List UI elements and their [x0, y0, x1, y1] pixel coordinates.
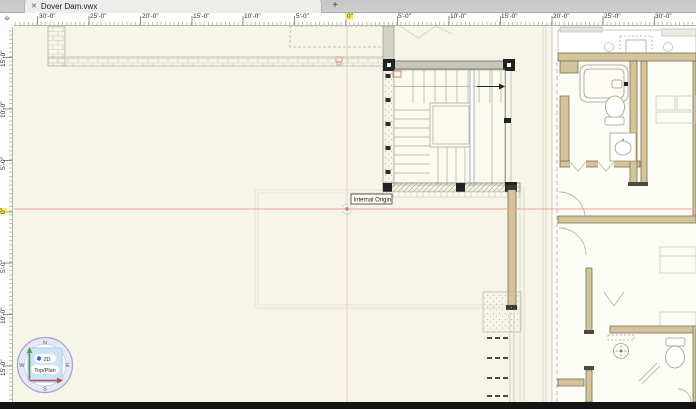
horizontal-ruler: 30'-0"25'-0"20'-0"15'-0"10'-0"5'-0"0"5'-… [14, 13, 696, 26]
ruler-label: 5'-0" [396, 13, 411, 20]
ruler-label: 15'-0" [0, 359, 7, 376]
roof-outline [400, 26, 452, 38]
ruler-label: 10'-0" [0, 101, 7, 118]
toilet-upper [605, 96, 625, 125]
drawing-canvas[interactable]: Internal Origin [14, 26, 696, 402]
ruler-label: 25'-0" [88, 13, 107, 20]
ruler-label: 10'-0" [448, 13, 467, 20]
bottom-bar [0, 402, 696, 409]
internal-origin-label: Internal Origin [351, 194, 392, 204]
vertical-ruler: 15'-0"10'-0"5'-0"0"5'-0"10'-0"15'-0" [0, 26, 13, 402]
stairwell [383, 26, 520, 197]
vanity-sink [610, 133, 636, 161]
ruler-label: 15'-0" [0, 50, 7, 67]
ruler-label: 0" [345, 13, 353, 20]
bathtub [580, 65, 628, 102]
masonry-wall [48, 26, 385, 66]
compass-west[interactable]: W [19, 363, 25, 369]
kitchen-counter [558, 27, 696, 53]
toilet-lower [666, 338, 686, 368]
vectorworks-window: ✕ Dover Dam.vwx + ⌖ 30'-0"25'-0"20'-0"15… [0, 0, 696, 409]
mode-dot-icon [37, 356, 41, 360]
compass-east[interactable]: E [66, 363, 70, 369]
compass-north[interactable]: N [43, 341, 47, 347]
new-tab-button[interactable]: + [328, 0, 342, 13]
tab-bar: ✕ Dover Dam.vwx + [0, 0, 696, 13]
ruler-label: 10'-0" [242, 13, 261, 20]
close-icon[interactable]: ✕ [31, 3, 37, 10]
document-title: Dover Dam.vwx [41, 2, 97, 11]
ruler-origin-crosshair-icon[interactable]: ⌖ [0, 13, 14, 27]
ruler-label: 10'-0" [0, 307, 7, 324]
ruler-label: 5'-0" [0, 157, 7, 170]
compass-south[interactable]: S [43, 387, 47, 393]
guide-lines [520, 26, 543, 402]
ruler-label: 0" [0, 208, 7, 214]
footprint-outline [255, 190, 511, 308]
ruler-label: 5'-0" [294, 13, 309, 20]
floor-plan: Internal Origin [14, 26, 696, 402]
document-tab[interactable]: ✕ Dover Dam.vwx [24, 0, 322, 13]
ruler-label: 25'-0" [602, 13, 621, 20]
ruler-label: 5'-0" [0, 260, 7, 273]
ruler-label: 20'-0" [551, 13, 570, 20]
ruler-label: 20'-0" [140, 13, 159, 20]
site-wall [483, 185, 521, 402]
compass-view-label: Top/Plan [34, 368, 55, 374]
ruler-label: 30'-0" [653, 13, 672, 20]
dashed-outline [290, 26, 385, 47]
ruler-label: 30'-0" [37, 13, 56, 20]
compass-mode: 2D [44, 357, 51, 363]
view-compass[interactable]: N E S W 2D Top/Plan [15, 335, 75, 395]
svg-text:Internal Origin: Internal Origin [354, 198, 392, 204]
ruler-label: 15'-0" [191, 13, 210, 20]
ruler-label: 15'-0" [499, 13, 518, 20]
